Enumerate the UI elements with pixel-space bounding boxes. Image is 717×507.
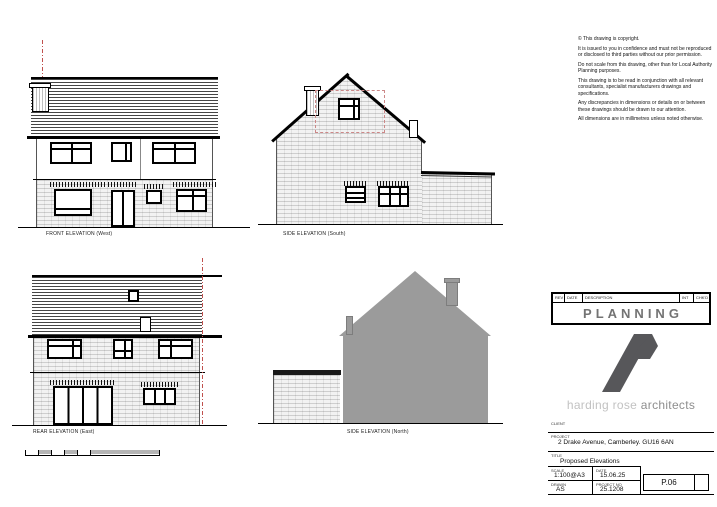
checked-column-header: CHK'D: [693, 294, 709, 302]
window: [176, 189, 207, 212]
scale-bar-segment: [90, 450, 160, 454]
wall-edge: [276, 138, 277, 225]
rooflight: [128, 290, 139, 302]
wall-edge: [36, 139, 37, 180]
ground-line: [258, 423, 503, 424]
title-block-rule: [548, 480, 640, 481]
scale-bar-tick: [38, 450, 39, 456]
window: [47, 339, 82, 359]
practice-name-light: harding rose: [567, 398, 641, 412]
ground-line: [12, 425, 227, 426]
lintel: [144, 184, 164, 189]
drawing-number-box: P.06: [643, 474, 709, 491]
scale-bar-tick: [77, 450, 78, 456]
flue-stack: [346, 316, 353, 335]
flue-stack: [409, 120, 418, 138]
window: [146, 190, 162, 204]
title-block-rule: [548, 432, 714, 433]
project-no-value: 25.1208: [600, 486, 624, 493]
revision-header-row: REV DATE DESCRIPTION INT CHK'D: [553, 294, 709, 303]
ground-line: [258, 224, 503, 225]
window: [113, 339, 133, 359]
copyright-notes: © This drawing is copyright. It is issue…: [578, 36, 714, 126]
lintel: [50, 182, 106, 187]
gable-window: [338, 98, 360, 120]
rooflight: [140, 317, 151, 332]
scale-bar-tick: [90, 450, 91, 456]
scale-bar-tick: [51, 450, 52, 456]
note-line: This drawing is to be read in conjunctio…: [578, 78, 714, 98]
front-door: [111, 190, 135, 227]
note-line: Any discrepancies in dimensions or detai…: [578, 100, 714, 113]
scale-bar: [25, 450, 160, 456]
scale-bar-baseline: [25, 455, 160, 456]
scale-bar-tick: [159, 450, 160, 456]
description-column-header: DESCRIPTION: [583, 294, 679, 302]
revision-cell: [694, 475, 708, 490]
rear-elevation-label: REAR ELEVATION (East): [33, 429, 95, 435]
drawn-value: AS: [556, 486, 565, 493]
scale-value: 1:100@A3: [554, 472, 585, 479]
project-value: 2 Drake Avenue, Camberley. GU16 6AN: [558, 439, 674, 446]
scale-bar-segment: [64, 450, 77, 454]
window: [50, 142, 92, 164]
note-line: © This drawing is copyright.: [578, 36, 714, 43]
north-elevation-label: SIDE ELEVATION (North): [347, 429, 409, 435]
window: [158, 339, 193, 359]
scale-bar-tick: [64, 450, 65, 456]
wall-joint-line: [140, 139, 141, 180]
chimney: [446, 280, 458, 306]
boundary-line: [202, 258, 203, 425]
drawing-title-value: Proposed Elevations: [560, 458, 620, 465]
lintel: [50, 380, 115, 385]
bifold-doors: [53, 386, 113, 425]
drawing-sheet: FRONT ELEVATION (West) SIDE ELEVATION (S…: [0, 0, 717, 507]
scale-bar-tick: [25, 450, 26, 456]
south-extension-wall: [422, 174, 492, 225]
north-extension-wall: [273, 375, 340, 423]
lintel: [108, 182, 138, 187]
note-line: Do not scale from this drawing, other th…: [578, 62, 714, 75]
planning-status-text: PLANNING: [553, 303, 709, 323]
chimney-cap: [444, 278, 460, 283]
window: [143, 388, 176, 405]
revision-planning-box: REV DATE DESCRIPTION INT CHK'D PLANNING: [551, 292, 711, 325]
drawing-number-value: P.06: [644, 475, 694, 490]
title-block-divider: [592, 466, 593, 494]
front-roof: [31, 77, 218, 138]
initial-column-header: INT: [679, 294, 693, 302]
scale-bar-segment: [38, 450, 51, 454]
ground-line: [18, 227, 250, 228]
window: [111, 142, 132, 162]
wall-edge: [421, 138, 422, 174]
rear-roof: [32, 277, 202, 335]
harding-rose-logo-mark: [594, 332, 666, 394]
front-elevation-label: FRONT ELEVATION (West): [46, 231, 112, 237]
practice-name: harding rose architects: [548, 398, 714, 412]
note-line: All dimensions are in millimetres unless…: [578, 116, 714, 123]
lintel: [173, 182, 216, 187]
client-label: CLIENT: [551, 421, 565, 426]
window: [54, 189, 92, 216]
wall-edge: [212, 139, 213, 180]
lintel: [141, 382, 179, 387]
chimney: [32, 84, 49, 112]
note-line: It is issued to you in confidence and mu…: [578, 46, 714, 59]
title-block-rule: [548, 451, 714, 452]
window: [378, 186, 409, 207]
chimney-cap: [29, 83, 51, 88]
date-column-header: DATE: [565, 294, 583, 302]
south-elevation-label: SIDE ELEVATION (South): [283, 231, 346, 237]
north-house-silhouette: [336, 271, 495, 424]
title-block: CLIENT PROJECT 2 Drake Avenue, Camberley…: [548, 420, 714, 496]
title-block-rule: [548, 466, 640, 467]
rev-column-header: REV: [553, 294, 565, 302]
window: [345, 186, 366, 203]
title-block-rule: [548, 494, 714, 495]
title-block-divider: [640, 466, 641, 494]
practice-name-bold: architects: [641, 398, 695, 412]
window: [152, 142, 196, 164]
date-value: 15.06.25: [600, 472, 625, 479]
